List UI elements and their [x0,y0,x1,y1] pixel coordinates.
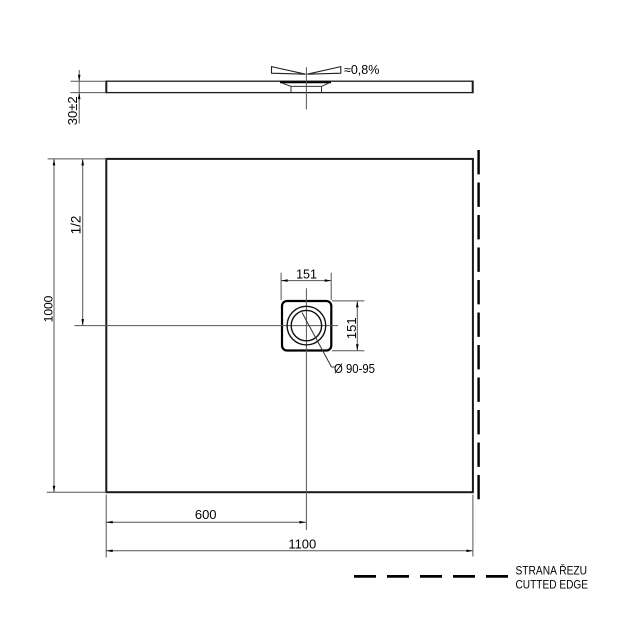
svg-text:≈0,8%: ≈0,8% [344,63,379,77]
svg-text:1/2: 1/2 [68,216,83,235]
svg-text:CUTTED EDGE: CUTTED EDGE [516,579,589,591]
svg-text:STRANA ŘEZU: STRANA ŘEZU [516,564,588,577]
svg-text:Ø 90-95: Ø 90-95 [334,361,375,376]
svg-text:151: 151 [296,268,317,282]
svg-text:30±2: 30±2 [65,96,80,125]
svg-text:151: 151 [344,317,359,339]
svg-text:1000: 1000 [41,295,55,322]
svg-text:1100: 1100 [288,536,316,551]
svg-text:600: 600 [195,507,217,522]
